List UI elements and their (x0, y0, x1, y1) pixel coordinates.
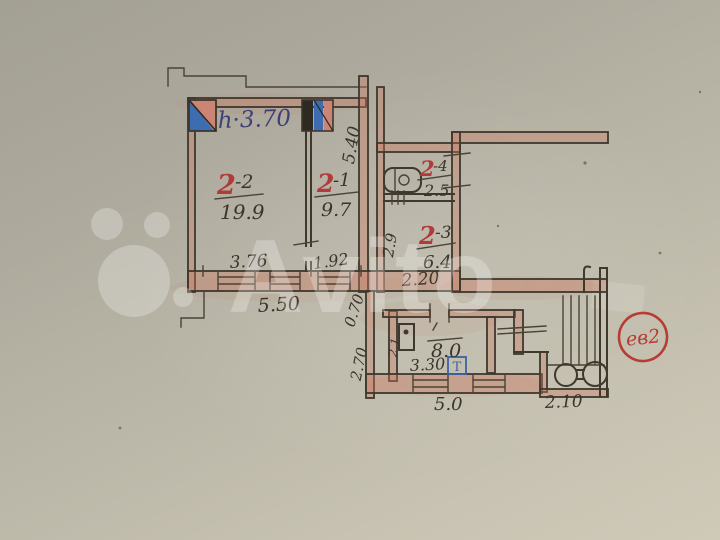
room-2-2-number: 2 (216, 170, 236, 201)
sink-dim-label: 2.1 (385, 337, 402, 359)
watermark-logo-icon (91, 208, 193, 317)
staircase-hatching (548, 296, 604, 365)
ceiling-height-note: h·3.70 (217, 105, 291, 134)
floor-plan-photo: Т h·3.70 2 -2 19.9 2 -1 9.7 2 -4 2.5 2 - (0, 0, 720, 540)
watermark-text: Avito (228, 219, 499, 335)
room-label-2-1: 2 -1 9.7 (315, 169, 358, 221)
room-2-2-suffix: -2 (235, 171, 254, 193)
stamp-text: ев2 (625, 325, 662, 350)
floor-plan-drawing: Т h·3.70 2 -2 19.9 2 -1 9.7 2 -4 2.5 2 - (0, 0, 720, 540)
watermark: Avito (91, 208, 499, 335)
bathtub-icon (384, 168, 421, 192)
room-2-1-number: 2 (316, 169, 334, 198)
vent-block-2-icon (302, 100, 333, 131)
gas-stove-label: Т (453, 360, 462, 375)
dim-5-0: 5.0 (434, 394, 463, 415)
room-label-2-4: 2 -4 2.5 (418, 156, 452, 200)
room-2-4-area: 2.5 (423, 181, 449, 200)
vent-block-icon (189, 100, 216, 131)
room-2-1-area: 9.7 (321, 199, 352, 221)
room-2-1-suffix: -1 (333, 170, 351, 191)
room-2-4-suffix: -4 (433, 157, 448, 175)
stamp: ев2 (617, 311, 670, 364)
dim-3-30: 3.30 (409, 354, 446, 375)
room-label-2-2: 2 -2 19.9 (215, 170, 265, 224)
dim-2-10: 2.10 (543, 392, 583, 413)
